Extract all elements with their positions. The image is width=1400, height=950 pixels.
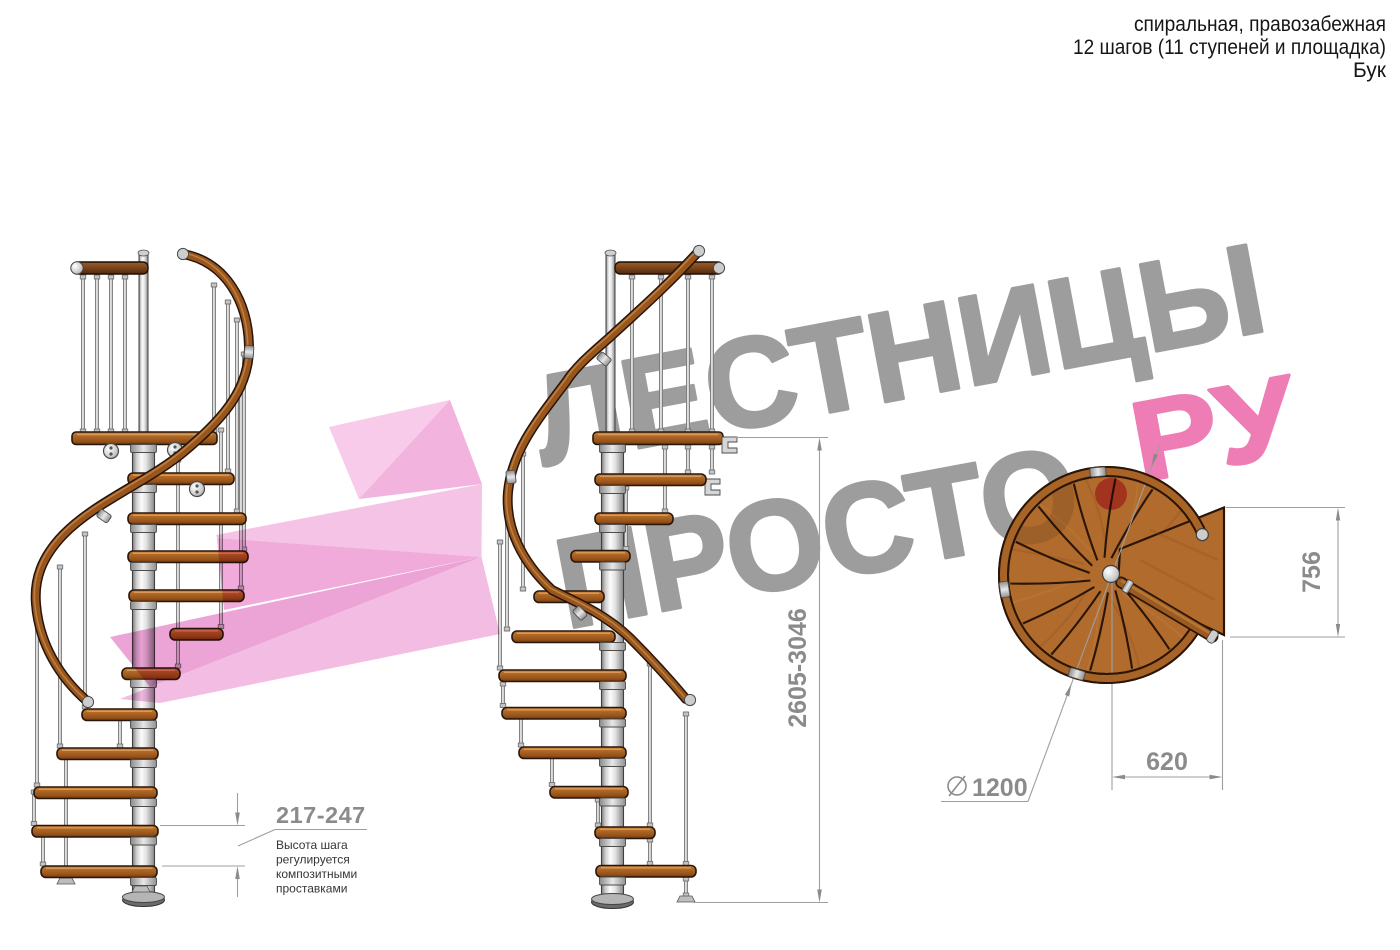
svg-text:756: 756: [1298, 551, 1326, 593]
svg-text:регулируется: регулируется: [276, 853, 350, 867]
svg-text:Высота шага: Высота шага: [276, 838, 348, 852]
svg-text:композитными: композитными: [276, 867, 357, 881]
svg-text:12 шагов (11 ступеней и площад: 12 шагов (11 ступеней и площадка): [1073, 36, 1386, 59]
svg-text:спиральная, правозабежная: спиральная, правозабежная: [1134, 13, 1386, 36]
svg-text:Бук: Бук: [1353, 59, 1387, 82]
svg-text:2605-3046: 2605-3046: [784, 608, 812, 728]
svg-text:1200: 1200: [972, 774, 1028, 802]
svg-text:620: 620: [1146, 748, 1188, 776]
svg-text:217-247: 217-247: [276, 802, 366, 828]
svg-text:проставками: проставками: [276, 882, 347, 896]
